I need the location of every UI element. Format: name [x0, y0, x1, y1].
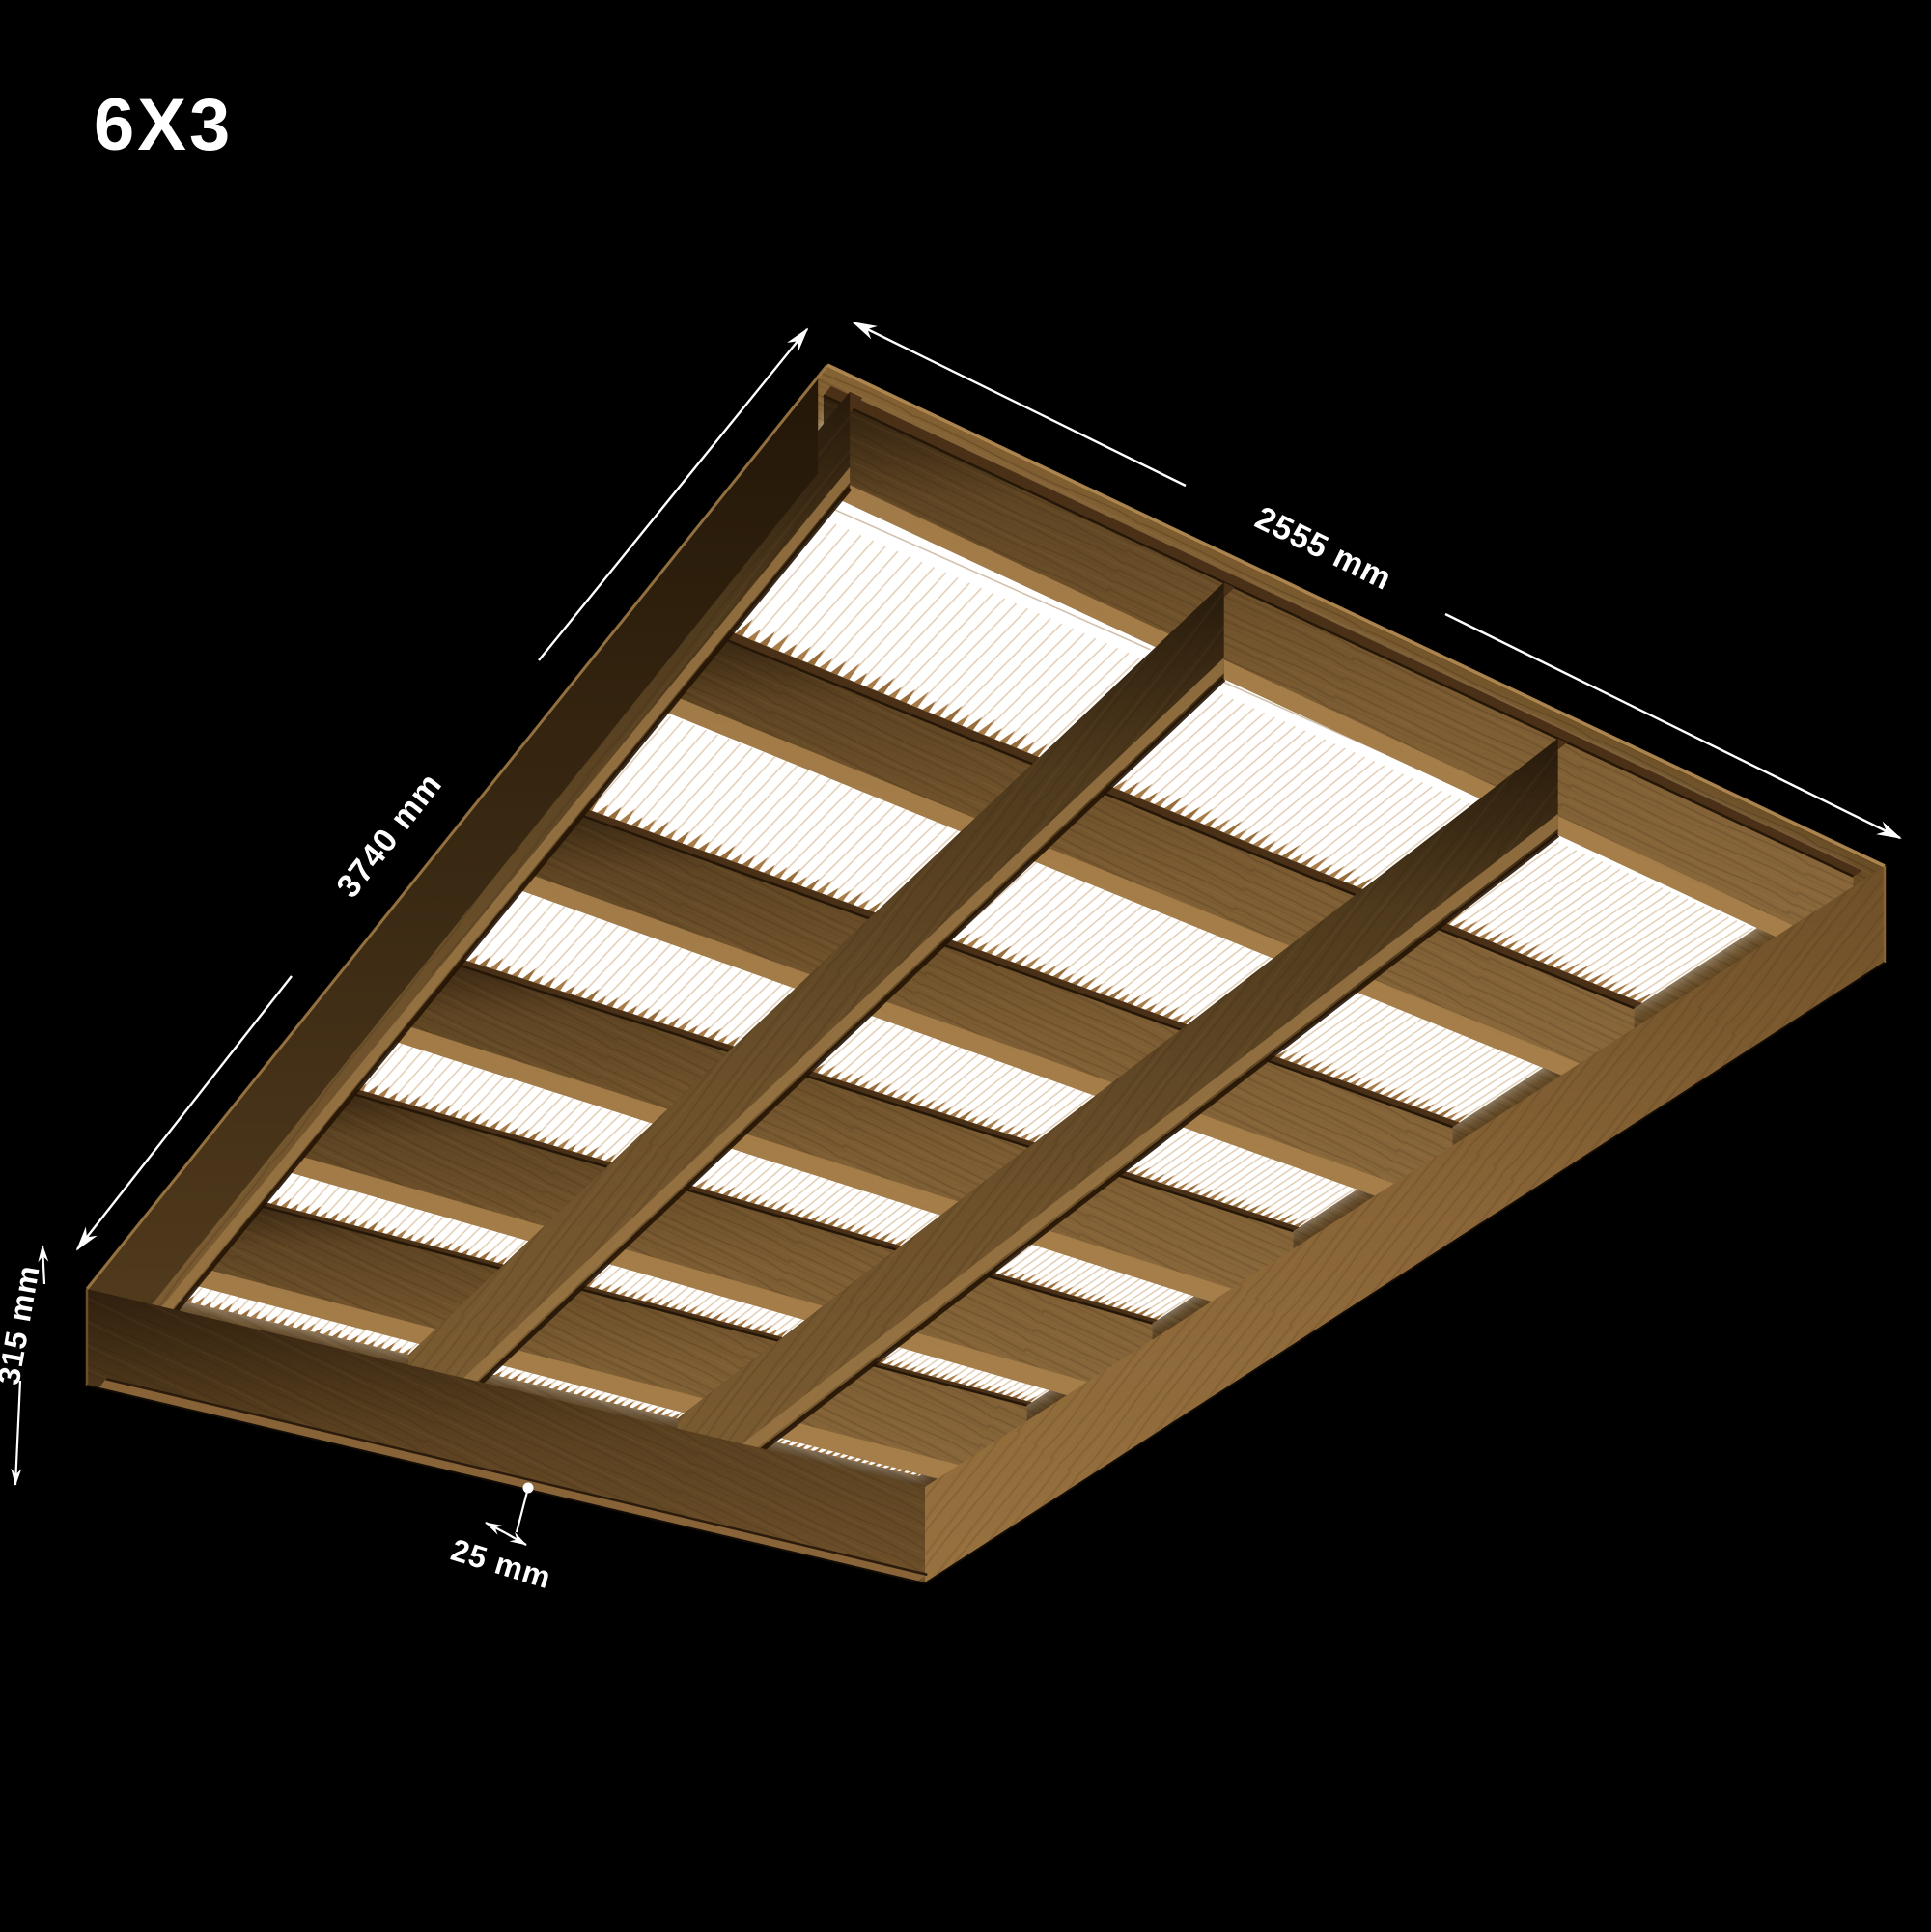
render-stage: 2555 mm 3740 mm 315 mm 25 mm 6X3	[0, 0, 1931, 1932]
grid-size-label: 6X3	[94, 84, 233, 166]
panel-figure: 2555 mm 3740 mm 315 mm 25 mm 6X3	[0, 0, 1931, 1932]
